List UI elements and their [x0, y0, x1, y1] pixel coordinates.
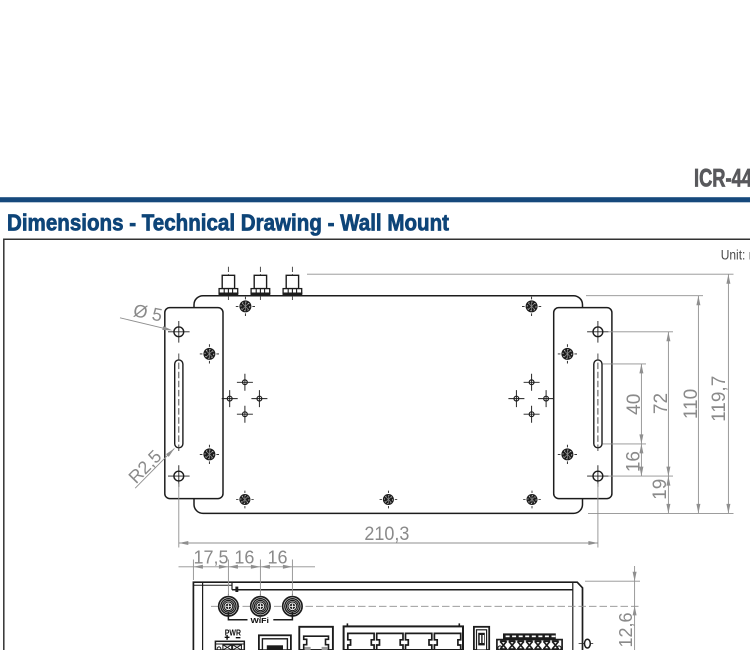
svg-text:16: 16	[267, 548, 287, 568]
svg-text:Dimensions - Technical Drawing: Dimensions - Technical Drawing - Wall Mo…	[7, 210, 449, 236]
svg-text:110: 110	[681, 389, 702, 419]
svg-text:16: 16	[623, 451, 644, 472]
svg-text:72: 72	[651, 393, 672, 414]
svg-text:19: 19	[650, 479, 671, 500]
svg-text:119,7: 119,7	[709, 376, 730, 422]
svg-text:R2,5: R2,5	[125, 446, 166, 487]
svg-text:12,6: 12,6	[616, 612, 636, 647]
svg-text:Unit: mm: Unit: mm	[721, 248, 750, 263]
svg-text:WiFi: WiFi	[251, 616, 270, 625]
svg-text:ICR-44: ICR-44	[694, 164, 750, 192]
svg-text:210,3: 210,3	[364, 524, 409, 545]
svg-text:17,5: 17,5	[193, 548, 228, 568]
svg-text:40: 40	[624, 394, 645, 415]
svg-text:16: 16	[234, 548, 254, 568]
